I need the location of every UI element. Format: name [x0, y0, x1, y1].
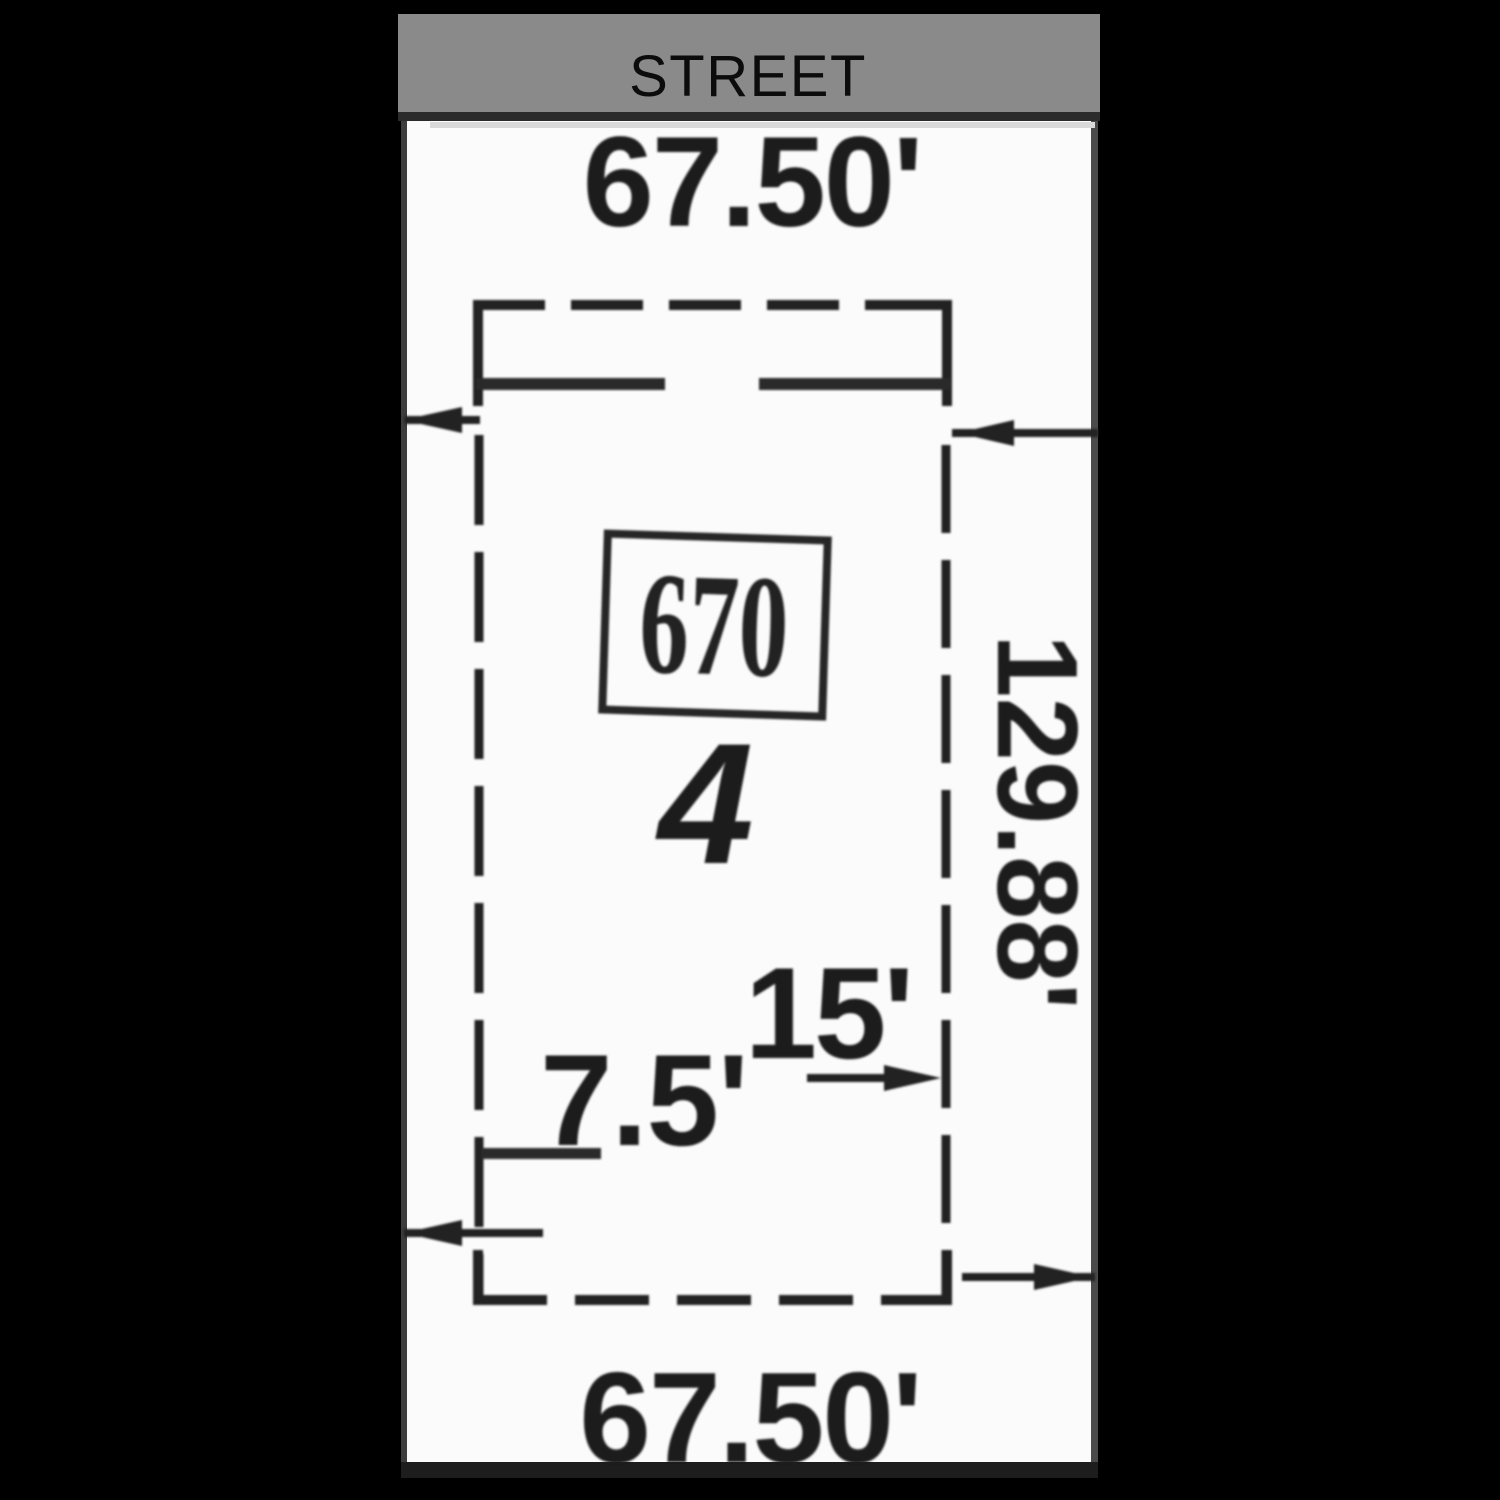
- svg-text:67.50': 67.50': [583, 111, 922, 254]
- svg-text:670: 670: [637, 543, 791, 709]
- svg-text:67.50': 67.50': [579, 1346, 921, 1490]
- svg-text:15': 15': [745, 940, 912, 1086]
- svg-text:129.88': 129.88': [973, 634, 1100, 1010]
- svg-text:4: 4: [655, 708, 754, 900]
- svg-text:STREET: STREET: [629, 44, 867, 109]
